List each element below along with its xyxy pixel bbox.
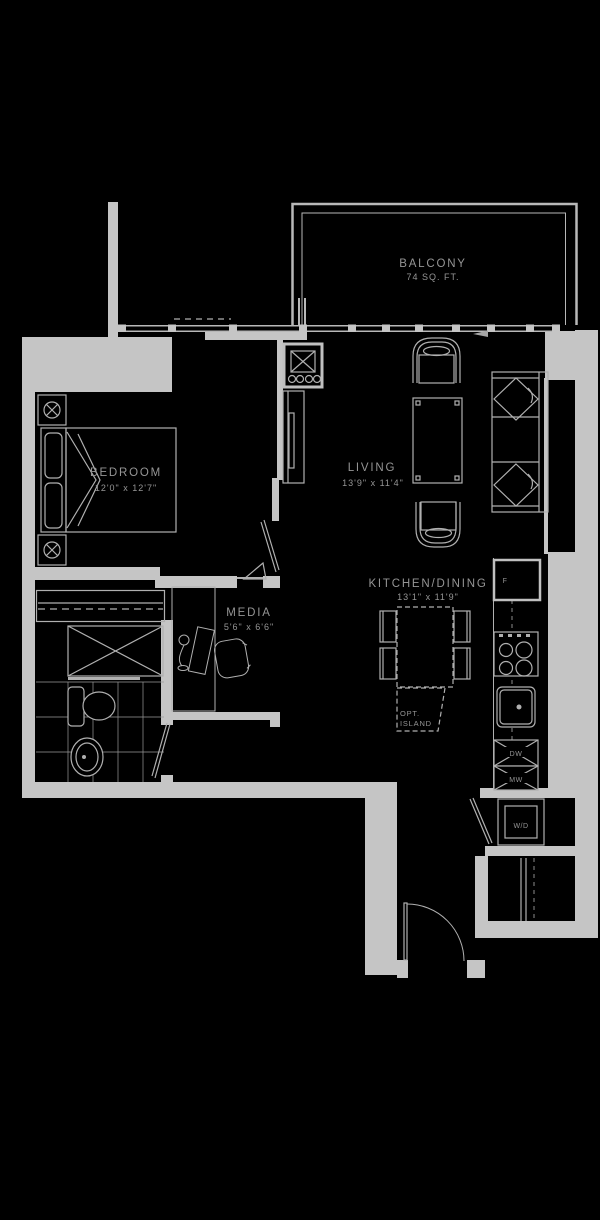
bedroom-door-swing <box>244 563 266 579</box>
desk-lamp-icon <box>179 635 189 645</box>
kitchen-sink-drain <box>517 705 522 710</box>
laundry-door-leaf <box>470 799 489 844</box>
wall-kitchen-right <box>548 552 598 792</box>
entry-door-swing-arc <box>407 904 464 961</box>
bedroom-closet <box>37 591 165 622</box>
entry-jamb-left <box>397 960 408 978</box>
entry <box>404 858 534 961</box>
media-label: MEDIA <box>226 607 271 619</box>
wall-bath-right-lower <box>161 775 173 787</box>
kitchen-sink <box>497 687 535 727</box>
wall-window-bump <box>205 332 307 340</box>
washer-dryer-label: W/D <box>513 823 528 830</box>
media-nook <box>172 587 252 711</box>
island-label-1: OPT. <box>400 709 420 718</box>
laundry <box>470 798 544 845</box>
entry-jamb-right <box>467 960 485 978</box>
balcony-label: BALCONY <box>399 258 467 270</box>
sofa-pillow-bottom <box>494 464 538 506</box>
living-label: LIVING <box>348 462 397 474</box>
desk-lamp-base <box>178 666 188 671</box>
bath-sink-drain <box>82 755 86 759</box>
wall-bedroom-living <box>277 340 283 480</box>
desk-chair <box>213 637 252 679</box>
toilet-tank <box>68 687 84 726</box>
kitchen-label: KITCHEN/DINING <box>368 578 487 590</box>
wall-topleft-block <box>22 337 172 392</box>
sofa-pillow-top <box>494 378 538 420</box>
bed-fold-line <box>67 432 96 528</box>
shower-threshold <box>68 677 140 680</box>
armchair-bottom <box>416 502 460 547</box>
wall-bedroom-bottom-a <box>35 567 160 580</box>
bathroom <box>36 626 170 782</box>
bathroom-door-leaf-2 <box>155 724 170 778</box>
washer-dryer-inner <box>505 806 537 838</box>
laundry-door-leaf-2 <box>473 798 492 843</box>
wall-media-step <box>270 712 280 727</box>
armchair-bottom-inner <box>420 502 456 543</box>
armchair-top <box>413 338 460 383</box>
bedroom-dims: 12'0" x 12'7" <box>95 483 157 493</box>
armchair-top-inner <box>417 342 456 383</box>
bed-pillow-top <box>45 433 62 478</box>
toilet-bowl <box>83 692 115 720</box>
coffee-table <box>413 398 462 483</box>
wall-notch-strip <box>108 202 118 337</box>
wall-chamfer-top <box>272 478 279 521</box>
window-wall <box>118 319 560 337</box>
fridge <box>494 560 540 600</box>
desk-lamp-arm <box>179 645 184 666</box>
island-label-2: ISLAND <box>400 719 432 728</box>
bedroom-door-leaf-2 <box>264 520 279 570</box>
tv-screen <box>289 413 294 468</box>
armchair-bottom-seat <box>421 502 456 530</box>
wall-closet-left <box>475 856 488 921</box>
desk-laptop <box>188 627 214 675</box>
balcony-door-track-a <box>298 298 300 325</box>
wall-media-bottom <box>165 712 280 720</box>
closet-outline <box>37 591 165 622</box>
bedroom-label: BEDROOM <box>90 467 162 479</box>
living-dims: 13'9" x 11'4" <box>342 478 404 488</box>
bedroom <box>38 395 279 579</box>
kitchen-dims: 13'1" x 11'9" <box>397 592 459 602</box>
wall-corridor-left <box>365 798 397 975</box>
balcony-door-track-b <box>304 298 306 325</box>
bed-pillow-bottom <box>45 483 62 528</box>
wall-hall-bottom-band <box>22 782 397 798</box>
wall-left-band <box>22 392 35 798</box>
armchair-top-seat <box>419 355 454 383</box>
wall-laundry-bottom <box>485 846 577 856</box>
entry-door-leaf <box>404 903 407 960</box>
wall-bedroom-bottom-b <box>155 576 237 588</box>
dishwasher-label: DW <box>510 751 523 758</box>
living-room <box>283 338 548 547</box>
bathroom-door-leaf <box>152 723 167 776</box>
fridge-label: F <box>503 578 508 585</box>
floor-plan: BALCONY 74 SQ. FT. BEDROOM <box>0 0 600 1220</box>
dining-table <box>397 607 453 687</box>
floor-plan-page: BALCONY 74 SQ. FT. BEDROOM <box>0 0 600 1220</box>
balcony-area: 74 SQ. FT. <box>406 272 459 282</box>
armchair-top-cushion <box>424 347 450 356</box>
microwave-label: MW <box>509 777 522 784</box>
media-dims: 5'6" x 6'6" <box>224 622 274 632</box>
wall-closet-bottom <box>475 921 598 938</box>
